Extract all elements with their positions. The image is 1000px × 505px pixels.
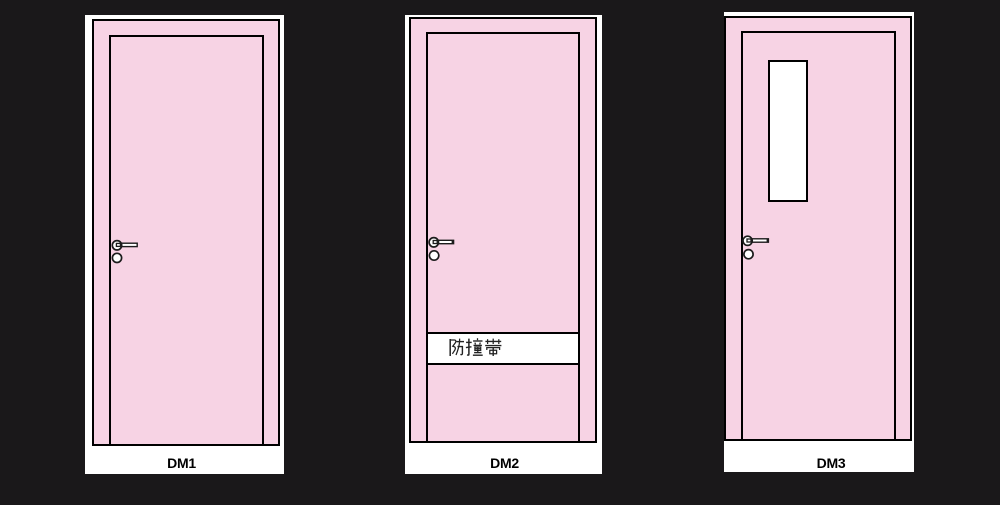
svg-text:DM2: DM2 <box>490 455 519 471</box>
svg-text:DM3: DM3 <box>817 455 846 471</box>
svg-text:DM1: DM1 <box>167 455 196 471</box>
